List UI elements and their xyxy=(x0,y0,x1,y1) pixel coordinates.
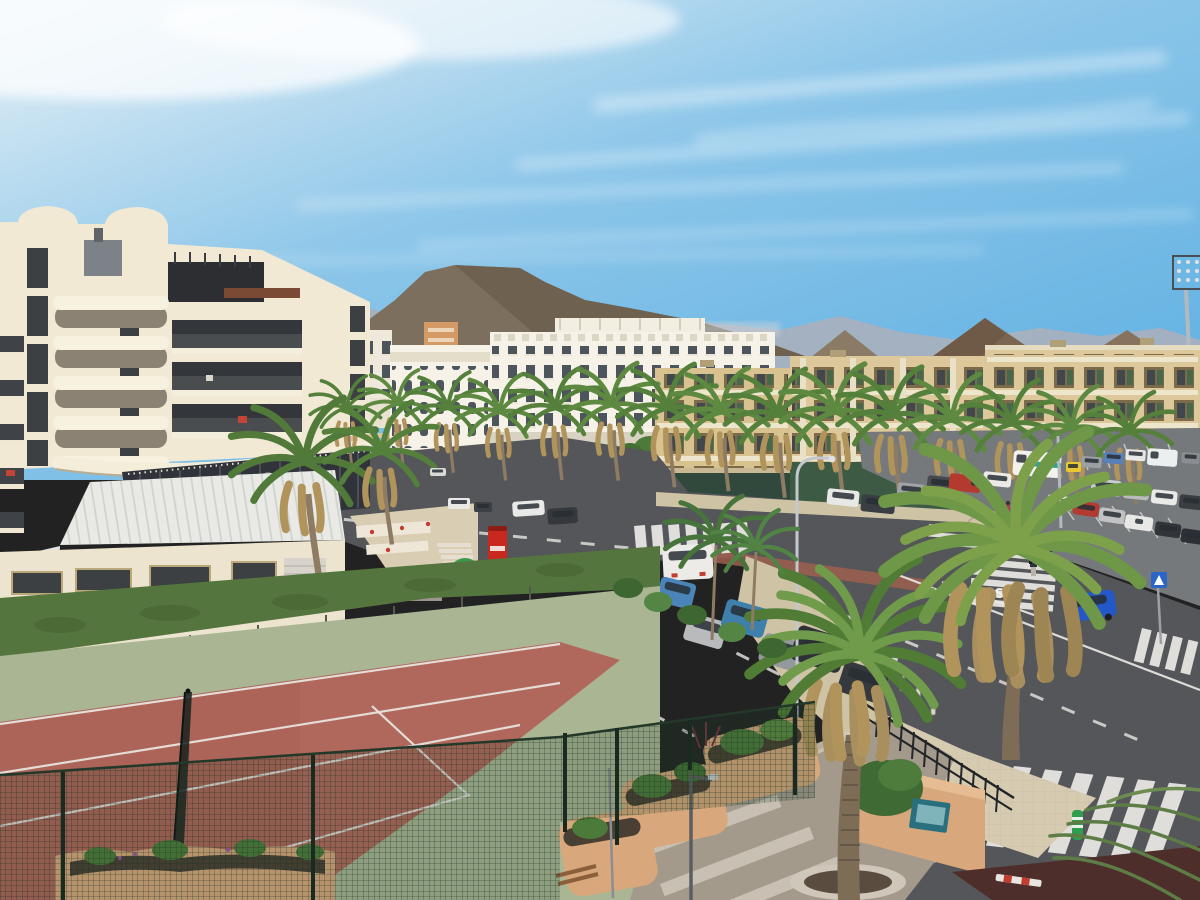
resort-street-photo: STOP xyxy=(0,0,1200,900)
parked-car xyxy=(448,498,470,509)
parked-car xyxy=(1151,489,1178,506)
parked-car xyxy=(512,500,545,517)
parked-car xyxy=(1181,452,1200,464)
curved-balcony-bay xyxy=(53,296,169,470)
parked-car xyxy=(1103,452,1124,464)
parked-car xyxy=(1179,494,1200,510)
white-box-van xyxy=(1147,448,1178,467)
parked-car xyxy=(1125,449,1146,461)
taxi xyxy=(1066,462,1081,472)
white-van xyxy=(662,543,714,581)
parked-car xyxy=(826,488,859,507)
parked-car xyxy=(547,507,578,525)
parked-car xyxy=(1081,456,1102,468)
parked-car xyxy=(430,468,446,476)
roof-vent xyxy=(84,240,122,276)
vending-machine xyxy=(488,526,507,560)
parked-car xyxy=(474,502,492,512)
